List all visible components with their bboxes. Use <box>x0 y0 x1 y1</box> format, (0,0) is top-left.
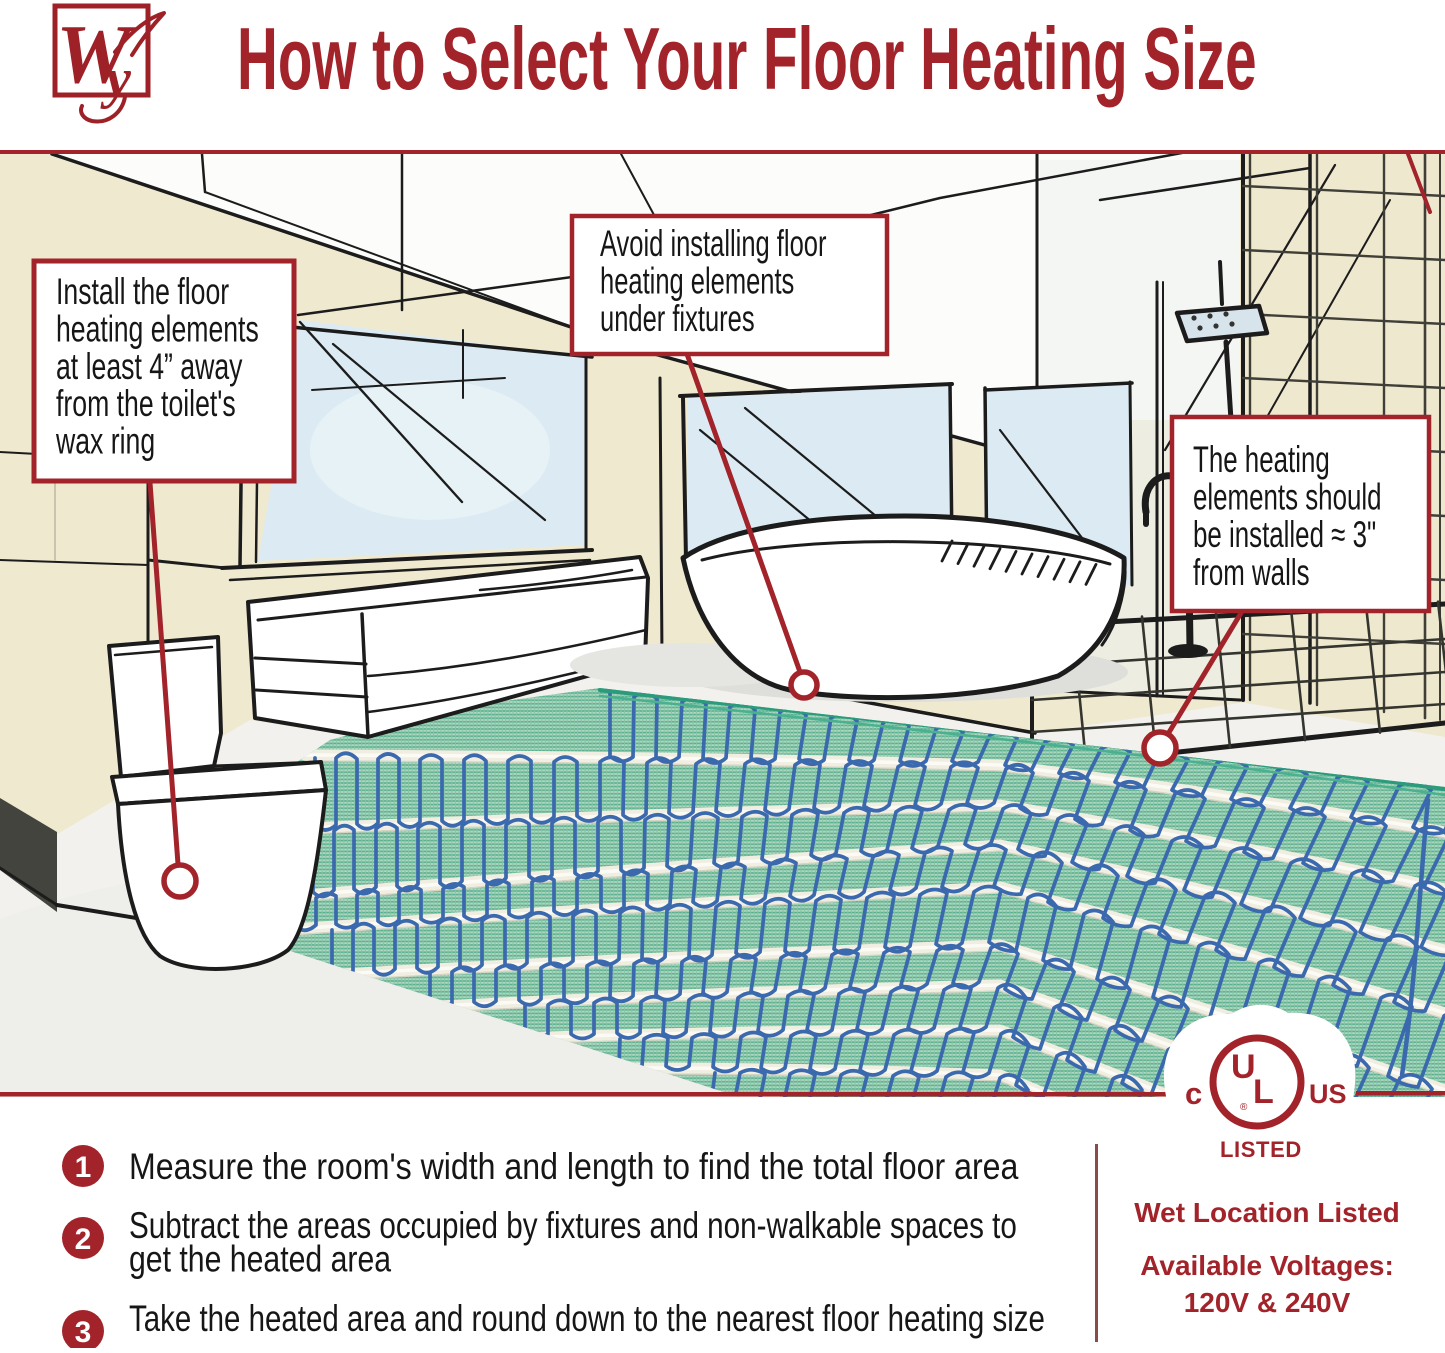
svg-text:1: 1 <box>75 1151 92 1184</box>
svg-text:Avoid installing floor: Avoid installing floor <box>600 222 827 264</box>
svg-text:L: L <box>1253 1073 1274 1111</box>
svg-text:US: US <box>1309 1079 1347 1109</box>
svg-text:LISTED: LISTED <box>1220 1137 1302 1162</box>
svg-text:be installed ≈ 3": be installed ≈ 3" <box>1193 514 1376 556</box>
svg-text:Take the heated area and round: Take the heated area and round down to t… <box>129 1299 1045 1340</box>
svg-text:3: 3 <box>75 1316 92 1348</box>
svg-text:2: 2 <box>75 1223 92 1256</box>
svg-text:from the toilet's: from the toilet's <box>56 383 236 424</box>
svg-text:from walls: from walls <box>1193 551 1310 593</box>
svg-text:c: c <box>1185 1076 1202 1111</box>
svg-text:get the heated area: get the heated area <box>129 1239 391 1281</box>
svg-text:wax ring: wax ring <box>55 420 155 461</box>
svg-text:U: U <box>1231 1048 1256 1086</box>
svg-text:®: ® <box>1240 1102 1248 1113</box>
svg-text:at least 4” away: at least 4” away <box>56 346 243 387</box>
svg-text:Available Voltages:: Available Voltages: <box>1140 1250 1394 1281</box>
svg-text:Measure the room's width and l: Measure the room's width and length to f… <box>129 1147 1019 1188</box>
svg-text:Install the floor: Install the floor <box>56 271 229 312</box>
svg-text:under fixtures: under fixtures <box>600 297 755 339</box>
svg-text:elements should: elements should <box>1193 476 1382 518</box>
svg-text:120V & 240V: 120V & 240V <box>1184 1287 1351 1318</box>
svg-text:Wet Location Listed: Wet Location Listed <box>1134 1197 1400 1228</box>
svg-text:How to Select Your Floor Heati: How to Select Your Floor Heating Size <box>237 9 1257 108</box>
svg-text:The heating: The heating <box>1193 438 1330 480</box>
svg-text:heating elements: heating elements <box>600 260 794 302</box>
svg-text:heating elements: heating elements <box>56 308 259 349</box>
